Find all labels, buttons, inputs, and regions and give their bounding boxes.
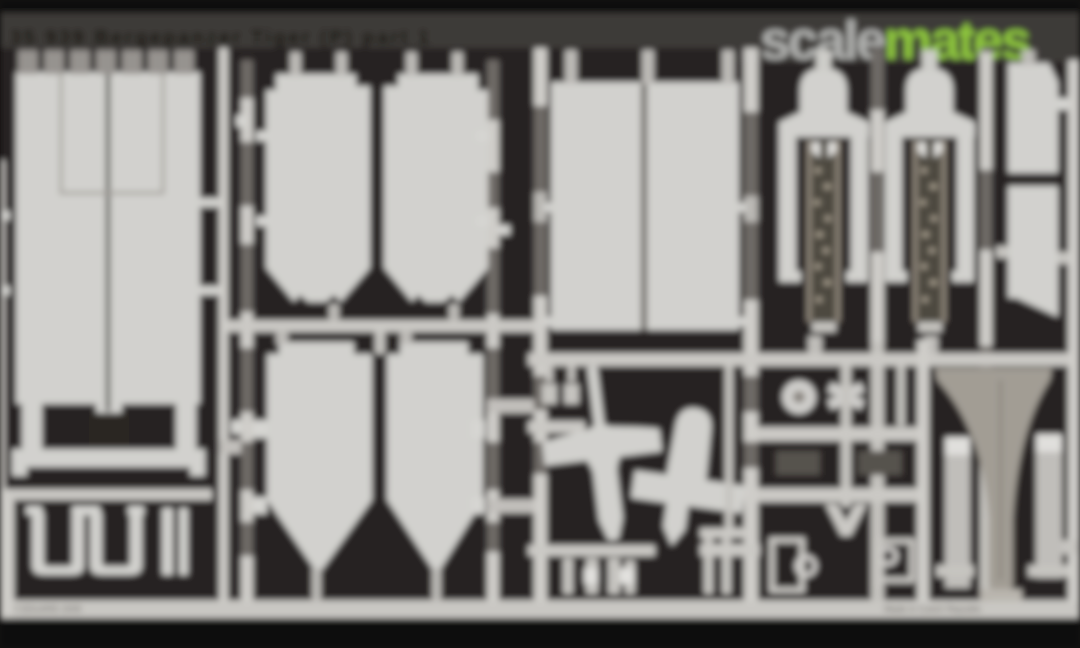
svg-text:Made in Czech Republic: Made in Czech Republic [884,604,982,614]
svg-text:© EDUARD 2005: © EDUARD 2005 [12,604,82,614]
svg-text:35 939 Bergepanzer Tiger (P): 35 939 Bergepanzer Tiger (P) part 1 [10,27,432,49]
